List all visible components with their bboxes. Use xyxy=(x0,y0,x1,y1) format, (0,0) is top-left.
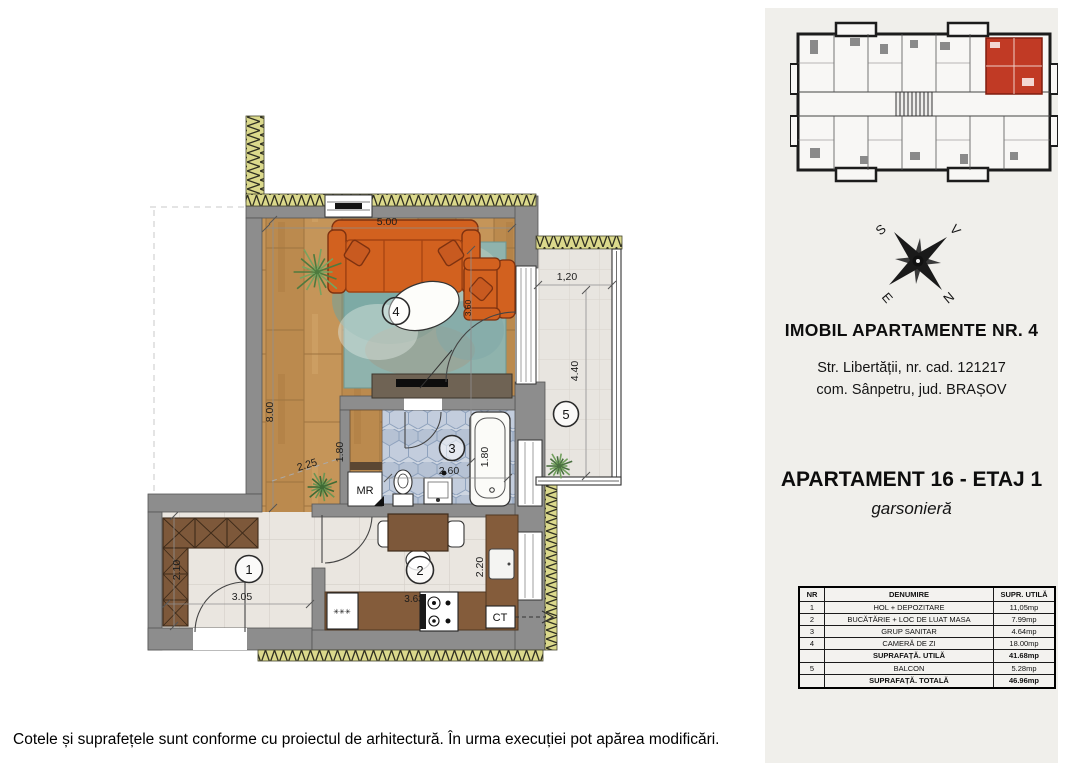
room-marker-balcony: 5 xyxy=(554,402,579,427)
living-window xyxy=(325,195,372,217)
highlighted-unit xyxy=(986,38,1042,94)
freezer: ✳✳✳ xyxy=(327,593,358,629)
svg-text:1: 1 xyxy=(245,562,252,577)
compass-north-label: N xyxy=(940,289,957,307)
svg-text:4: 4 xyxy=(392,304,399,319)
areas-table: NR DENUMIRE SUPR. UTILĂ 1 HOL + DEPOZITA… xyxy=(798,586,1056,689)
balcony-door xyxy=(516,266,536,384)
dim-hall-width: 3.05 xyxy=(232,591,253,603)
compass-star xyxy=(889,232,947,290)
table-row: 5 BALCON 5.28mp xyxy=(799,663,1055,675)
sofa xyxy=(328,220,480,293)
header-area: SUPR. UTILĂ xyxy=(994,587,1056,602)
table-row-total: SUPRAFAȚĂ. TOTALĂ 46.96mp xyxy=(799,675,1055,689)
table-row: 2 BUCĂTĂRIE + LOC DE LUAT MASA 7.99mp xyxy=(799,614,1055,626)
address-line2: com. Sânpetru, jud. BRAȘOV xyxy=(765,382,1058,398)
dim-balcony-length: 4.40 xyxy=(569,361,581,382)
room-marker-hall: 1 xyxy=(236,556,263,583)
dim-bath-width: 2.60 xyxy=(439,465,460,477)
compass-west-label: V xyxy=(947,222,964,239)
dim-balcony-width: 1,20 xyxy=(557,271,578,283)
header-name: DENUMIRE xyxy=(825,587,994,602)
apartment-floor-plan: MR xyxy=(0,0,765,763)
header-nr: NR xyxy=(799,587,825,602)
svg-text:3: 3 xyxy=(448,441,455,456)
freezer-symbol: ✳✳✳ xyxy=(333,608,351,616)
fridge xyxy=(489,549,514,579)
compass-rose: V N E S xyxy=(863,206,973,316)
dim-storage: 1.80 xyxy=(334,442,346,463)
boiler-label: CT xyxy=(493,612,508,624)
kitchen-window xyxy=(518,532,542,600)
storage-shelf xyxy=(350,462,382,470)
chair-right xyxy=(447,521,464,547)
dim-left-total: 8.00 xyxy=(264,402,276,423)
apartment-type: garsonieră xyxy=(765,499,1058,519)
disclaimer-text: Cotele și suprafețele sunt conforme cu p… xyxy=(13,731,719,749)
dim-kitchen-depth: 2.20 xyxy=(474,557,486,578)
table-row: 3 GRUP SANITAR 4.64mp xyxy=(799,626,1055,638)
svg-text:2: 2 xyxy=(416,563,423,578)
neighbour-outline-dashes xyxy=(150,207,246,492)
entrance-opening xyxy=(193,628,247,650)
washing-machine-label: MR xyxy=(356,485,373,497)
compass-east-label: E xyxy=(879,290,896,307)
dim-living-depth: 3.60 xyxy=(463,299,473,316)
floor-plan-page: MR xyxy=(0,0,1080,763)
toilet xyxy=(393,470,413,506)
building-outline xyxy=(790,23,1058,181)
apartment-title: APARTAMENT 16 - ETAJ 1 xyxy=(765,468,1058,492)
stove xyxy=(420,592,458,631)
compass-south-label: S xyxy=(873,221,890,238)
building-key-plan xyxy=(790,18,1058,208)
room-marker-kitchen: 2 xyxy=(407,557,434,584)
table-header-row: NR DENUMIRE SUPR. UTILĂ xyxy=(799,587,1055,602)
info-panel: V N E S IMOBIL APARTAMENTE NR. 4 Str. Li… xyxy=(765,8,1058,763)
address-line1: Str. Libertății, nr. cad. 121217 xyxy=(765,360,1058,376)
washing-machine: MR xyxy=(348,472,382,506)
bath-dim-dot xyxy=(442,471,447,476)
room-marker-bathroom: 3 xyxy=(440,436,465,461)
svg-text:5: 5 xyxy=(562,407,569,422)
table-row: 1 HOL + DEPOZITARE 11,05mp xyxy=(799,602,1055,614)
building-title: IMOBIL APARTAMENTE NR. 4 xyxy=(765,320,1058,341)
staircase xyxy=(896,92,932,116)
room-marker-living: 4 xyxy=(383,298,410,325)
dim-bath-depth: 1.80 xyxy=(479,447,491,468)
table-row-total-useful: SUPRAFAȚĂ. UTILĂ 41.68mp xyxy=(799,650,1055,663)
bathroom-window xyxy=(518,440,542,506)
sink xyxy=(424,478,452,504)
dim-living-width: 5.00 xyxy=(377,216,398,228)
table-row: 4 CAMERĂ DE ZI 18.00mp xyxy=(799,638,1055,650)
dim-hall-depth: 2.10 xyxy=(171,560,183,581)
